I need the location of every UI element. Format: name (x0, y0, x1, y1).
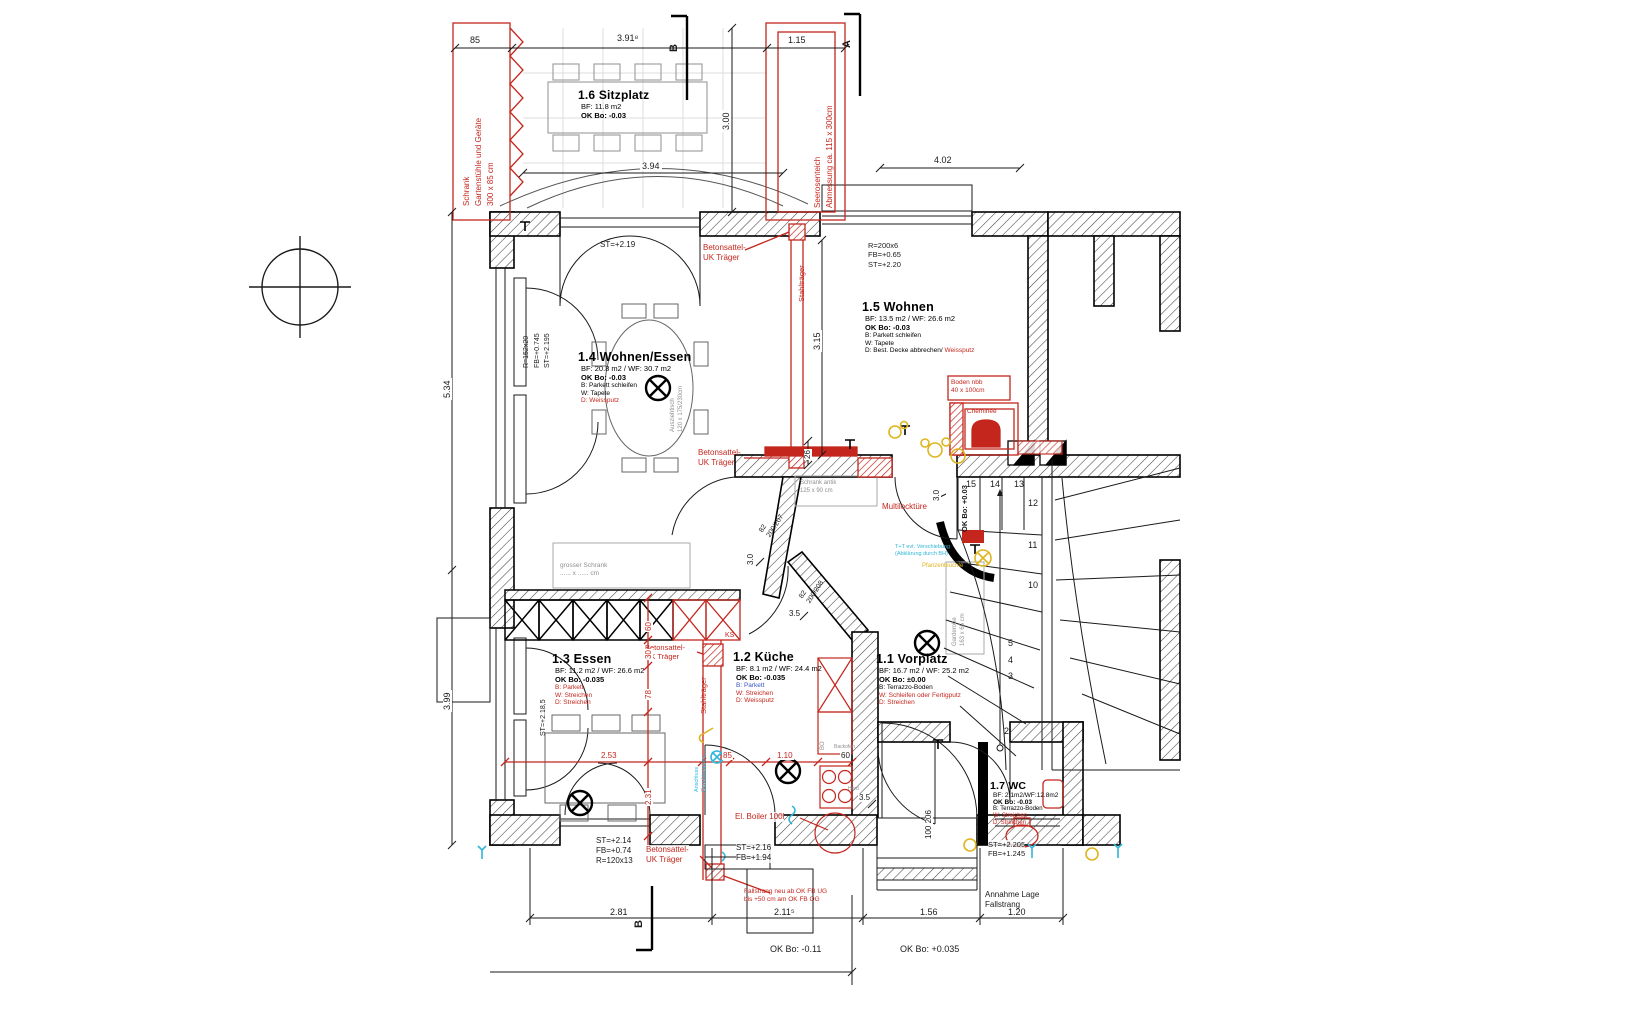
stair-number: 11 (1028, 540, 1037, 551)
stair-number: 3 (1008, 671, 1013, 682)
stair-number: 5 (1008, 638, 1013, 649)
dim-35-kueche: 3.5 (788, 610, 801, 618)
note-ks: KS (725, 632, 734, 641)
note-st219: ST=+2.19 (600, 240, 635, 250)
note-betonsattel-top: Betonsattel- UK Träger (703, 243, 746, 263)
dim-35-entry: 3.5 (858, 794, 871, 802)
dim-253: 2.53 (600, 752, 618, 760)
note-anschluss-geschirrspueler: Anschluss Geschirrspüler (694, 756, 708, 792)
dim-30-door: 3.0 (747, 553, 755, 566)
note-betonsattel-bottom: Betonsattel- UK Träger (646, 845, 689, 865)
note-boiler: El. Boiler 100l (735, 812, 784, 822)
stair-number: 12 (1028, 498, 1038, 509)
note-multilocktuere: Multilocktüre (882, 502, 927, 512)
dim-60: 60 (645, 621, 653, 632)
stair-number: 4 (1008, 655, 1013, 666)
room-label-sitzplatz: 1.6 Sitzplatz BF: 11.8 m2 OK Bo: -0.03 (578, 88, 649, 120)
note-r200: R=200x6 FB=+0.65 ST=+2.20 (868, 241, 901, 269)
room-label-essen: 1.3 Essen BF: 11.2 m2 / WF: 26.6 m2 OK B… (552, 652, 644, 707)
dim-300: 3.00 (722, 110, 731, 132)
dim-85: 85 (468, 36, 482, 45)
note-st2185: ST=+2.18,5 (540, 699, 549, 736)
note-annahme-fallstrang: Annahme Lage Fallstrang (985, 890, 1039, 910)
dim-30-stair: 3.0 (933, 489, 941, 502)
dim-door-100-206: 100 206 (925, 809, 933, 840)
dim-2115: 2.11⁵ (772, 908, 797, 917)
note-schrank-antik: Schrank antik 125 x 90 cm (800, 480, 836, 495)
note-bo: BO (820, 741, 828, 750)
stair-number: 10 (1028, 580, 1038, 591)
note-schrank-garten: Schrank Gartenstühle und Geräte 300 x 85… (461, 118, 497, 206)
dim-26: 26 (804, 449, 812, 460)
note-cheminee: Cheminée (967, 408, 997, 416)
dim-231: 2.31 (645, 788, 653, 806)
note-herd: Herd (848, 786, 859, 792)
stair-number: 15 (966, 479, 976, 490)
room-label-vorplatz: 1.1 Vorplatz BF: 16.7 m2 / WF: 25.2 m2 O… (876, 652, 969, 707)
note-stahltraeger-kueche: Stahlträger (699, 677, 708, 714)
note-st214: ST=+2.14 FB=+0.74 R=120x13 (596, 836, 633, 866)
dim-85b: 85 (722, 752, 733, 760)
dim-156: 1.56 (918, 908, 940, 917)
note-grosser-schrank: grosser Schrank ...... x ...... cm (560, 562, 607, 578)
note-seerosenteich: Seerosenteich Abmessung ca. 115 x 300cm (812, 105, 836, 208)
dim-315: 3.15 (813, 330, 822, 352)
floor-plan: B A B 85 3.91⁸ 1.15 3.00 3.94 4.02 5.34 … (0, 0, 1640, 1020)
note-okbo-stair: OK Bo: +0.03 (960, 485, 969, 532)
stair-number: 2 (1004, 726, 1009, 737)
note-okbo-0035: OK Bo: +0.035 (900, 944, 959, 955)
note-garderobe: Garderobe 163 x 65 cm (952, 613, 967, 646)
note-tt-verschiebung: T+T evt. Verschiebung (Abklärung durch B… (895, 544, 950, 558)
dim-115: 1.15 (786, 36, 808, 45)
room-label-wohnen: 1.5 Wohnen BF: 13.5 m2 / WF: 26.6 m2 OK … (862, 300, 974, 355)
note-st216: ST=+2.16 FB=+1.94 (736, 843, 771, 863)
room-label-wc: 1.7 WC BF: 2.1m2/WF:12.8m2 OK Bo: -0.03 … (990, 780, 1058, 827)
note-backofen: Backofen (834, 744, 855, 750)
section-marker-b-bottom: B (633, 920, 647, 928)
dim-30: 30 (645, 649, 653, 660)
note-okbo-011: OK Bo: -0.11 (770, 944, 821, 955)
dim-394: 3.94 (640, 162, 662, 171)
stair-number: 13 (1014, 479, 1024, 490)
note-pflanzenleuchte: Pfanzenleuchte (922, 563, 963, 571)
north-reference-symbol (249, 236, 351, 338)
dim-110: 1.10 (776, 752, 794, 760)
dim-534: 5.34 (443, 378, 452, 400)
note-st2205: ST=+2.205 FB=+1.245 (988, 840, 1025, 859)
section-marker-b-top: B (668, 44, 682, 52)
note-fallstrang: Fallstrang neu ab OK FB UG bis +50 cm am… (744, 888, 827, 904)
room-label-kueche: 1.2 Küche BF: 8.1 m2 / WF: 24.4 m2 OK Bo… (733, 650, 822, 705)
dim-281: 2.81 (608, 908, 630, 917)
note-boden-nbb: Boden nbb 40 x 100cm (951, 379, 985, 395)
dim-399: 3.99 (443, 690, 452, 712)
note-stahltraeger-top: Stahlträger (797, 265, 806, 302)
dim-402: 4.02 (932, 156, 954, 165)
dim-78: 78 (645, 689, 653, 700)
note-ausziehtisch: Ausziehtisch 120 x 175/230cm (670, 386, 685, 432)
stair-number: 14 (990, 479, 1000, 490)
note-betonsattel-mid: Betonsattel- UK Träger (698, 448, 741, 468)
section-marker-a-top: A (841, 40, 855, 48)
dim-60k: 60 (840, 752, 851, 760)
note-r152: R=152x20 FB=+0.745 ST=+2.195 (522, 333, 554, 368)
dim-391: 3.91⁸ (615, 34, 640, 43)
